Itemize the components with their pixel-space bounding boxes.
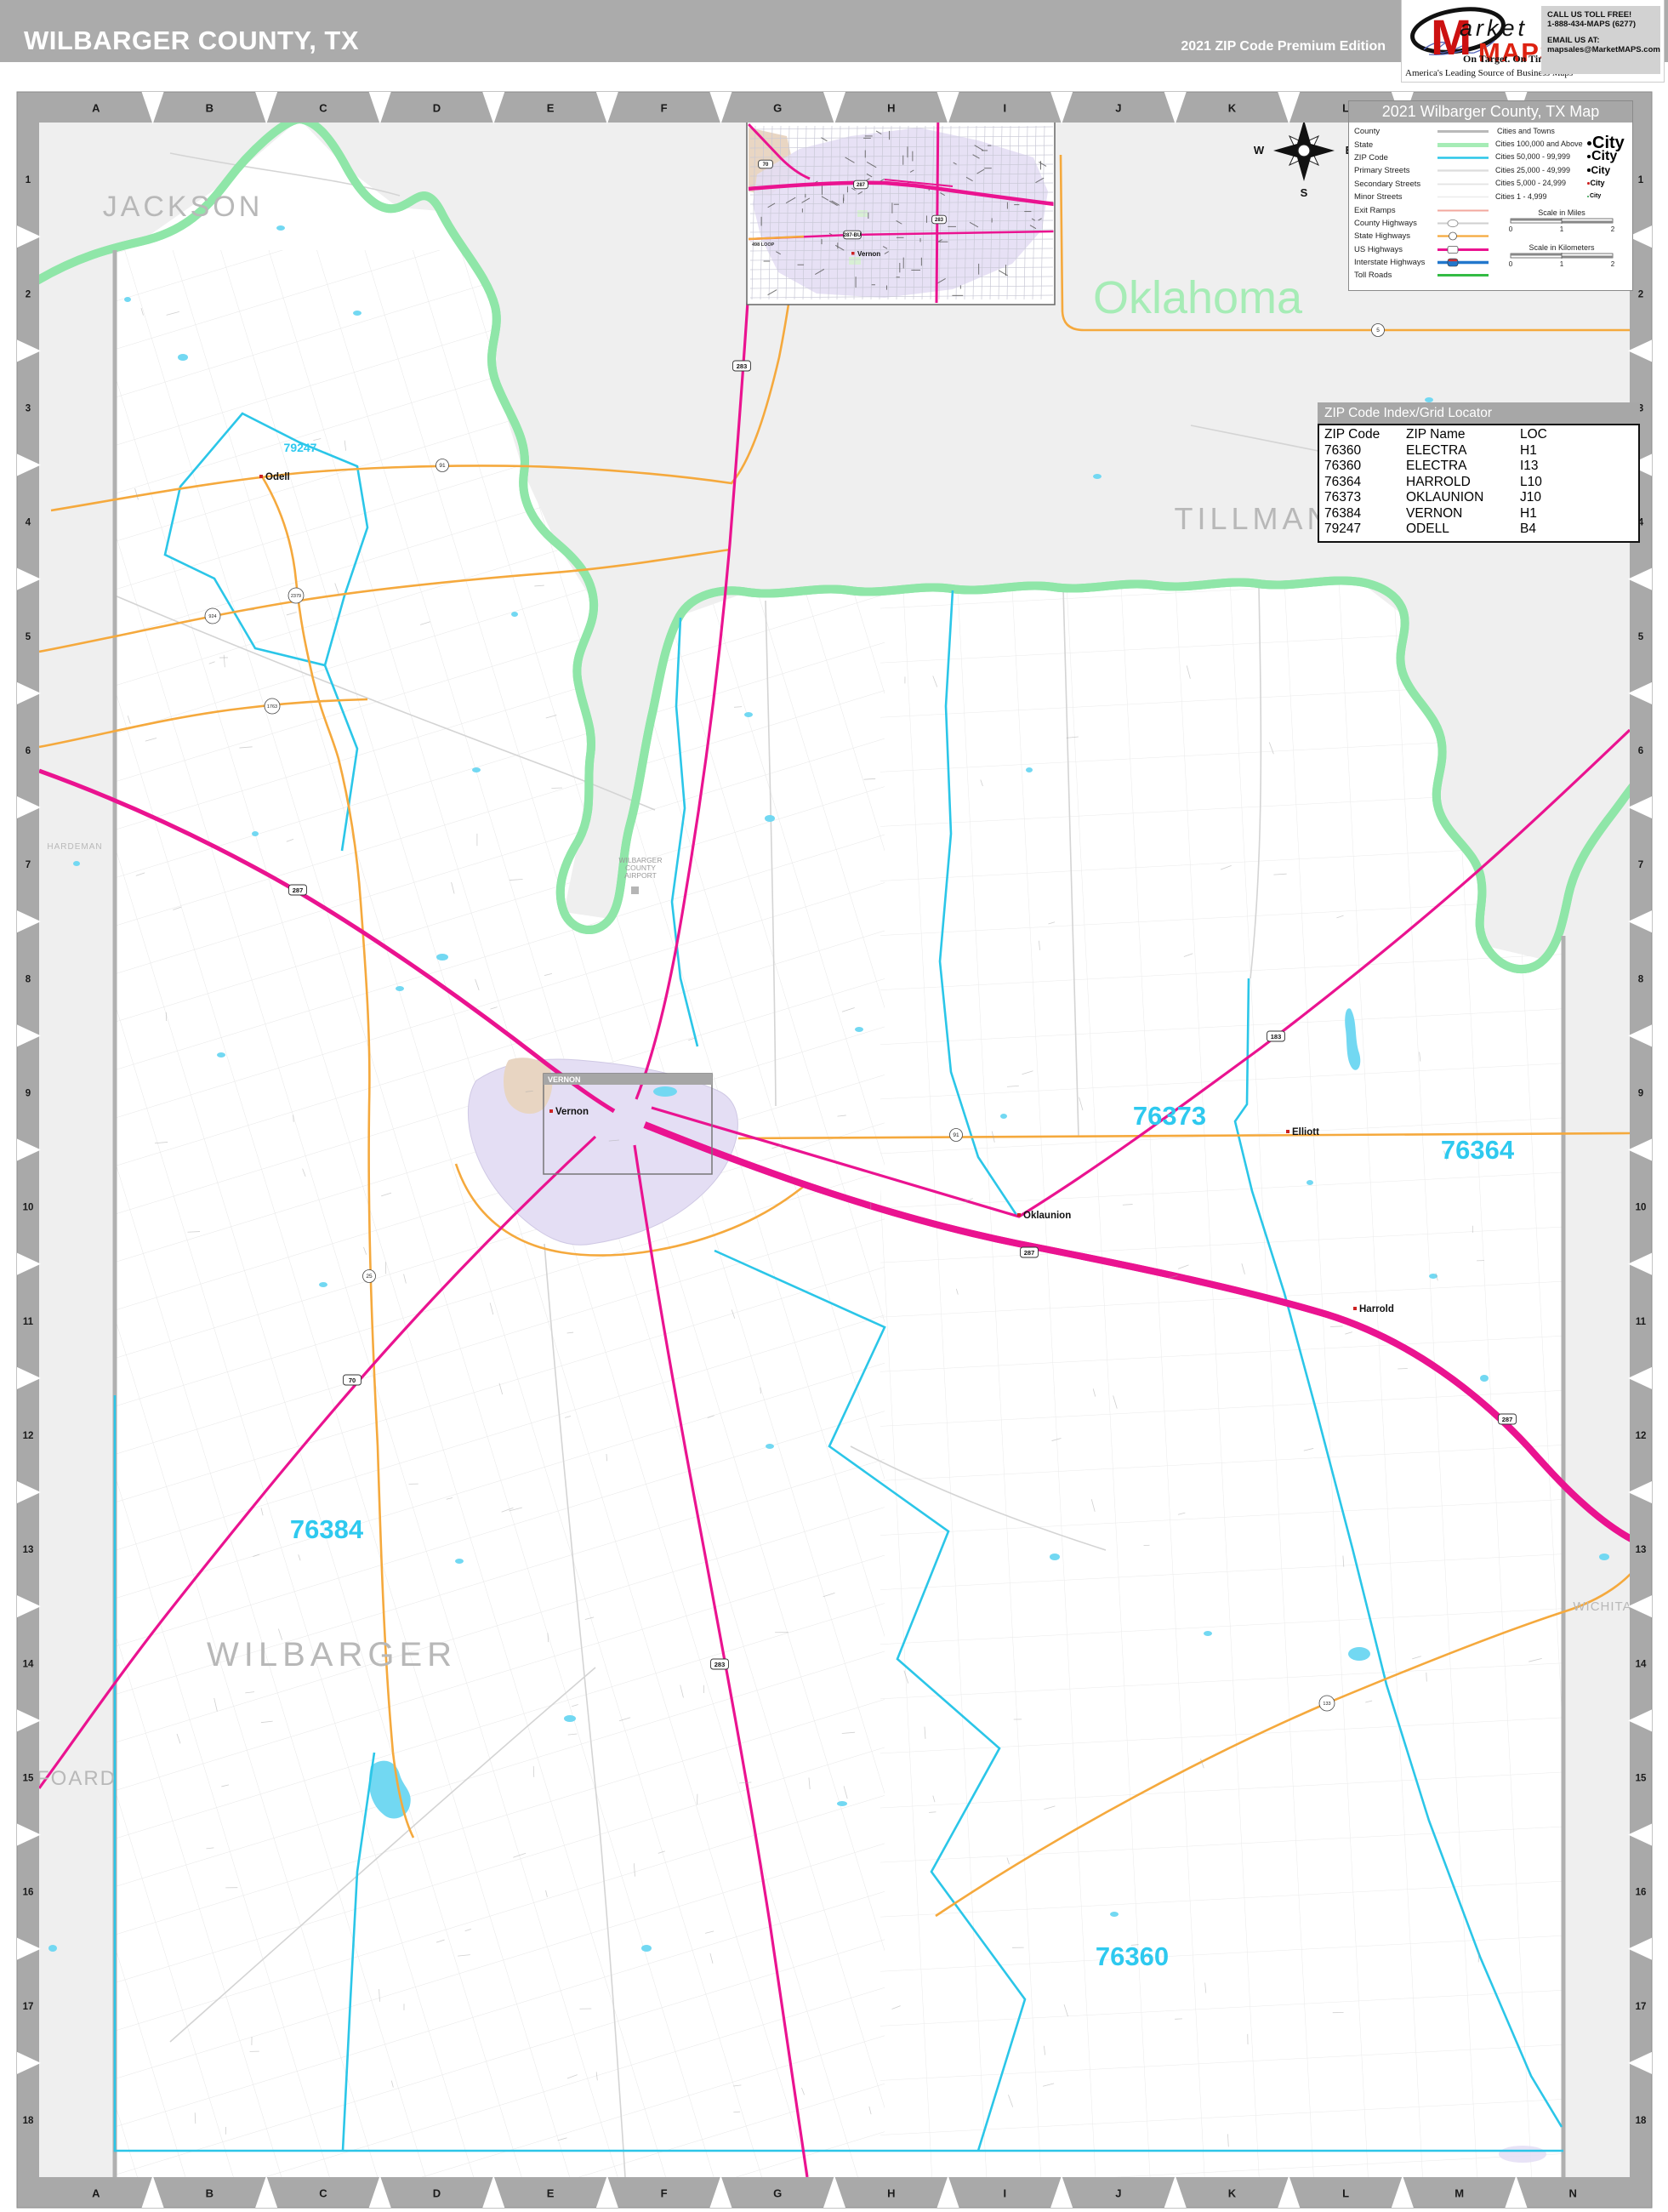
grid-number: 2 <box>1638 289 1643 299</box>
grid-number: 7 <box>1638 860 1643 870</box>
city-class-sample: City <box>1587 149 1617 164</box>
legend-item-label: US Highways <box>1354 245 1436 254</box>
zip-table-row: 76360ELECTRAH1 <box>1324 443 1638 459</box>
grid-letter: B <box>206 2187 213 2200</box>
legend-item-exit: Exit Ramps <box>1354 203 1495 216</box>
svg-text:91: 91 <box>953 1132 959 1138</box>
town-dot <box>1286 1130 1289 1133</box>
svg-text:Scale in Miles: Scale in Miles <box>1538 208 1585 217</box>
contact-phone: 1-888-434-MAPS (6277) <box>1547 20 1660 29</box>
grid-number: 15 <box>1636 1773 1647 1783</box>
svg-text:287: 287 <box>293 887 304 894</box>
legend-item-label: Primary Streets <box>1354 166 1436 175</box>
zip-table-cell: ODELL <box>1406 522 1520 538</box>
legend-item-secondary: Secondary Streets <box>1354 178 1495 191</box>
grid-letter: D <box>433 102 441 115</box>
legend-item-minor: Minor Streets <box>1354 191 1495 203</box>
state-label: Oklahoma <box>1093 272 1303 323</box>
compass-s: S <box>1301 186 1308 199</box>
grid-letter: B <box>206 102 213 115</box>
svg-text:2379: 2379 <box>291 594 301 599</box>
edition-label: 2021 ZIP Code Premium Edition <box>1181 39 1386 54</box>
grid-number: 9 <box>1638 1088 1643 1098</box>
svg-text:283: 283 <box>714 1661 726 1668</box>
legend-cities: Cities and Towns Cities 100,000 and Abov… <box>1495 123 1631 282</box>
town-dot <box>1017 1213 1021 1217</box>
map-legend: 2021 Wilbarger County, TX Map CountyStat… <box>1348 100 1633 291</box>
zip-code-label: 76373 <box>1133 1101 1206 1131</box>
grid-letter: E <box>547 2187 555 2200</box>
town-dot <box>259 475 263 478</box>
legend-city-class: Cities 50,000 - 99,999City <box>1495 151 1631 164</box>
zip-table-cell: ELECTRA <box>1406 459 1520 475</box>
svg-text:5: 5 <box>1376 328 1380 334</box>
town-dot <box>1353 1307 1357 1310</box>
grid-letter: M <box>1455 2187 1464 2200</box>
legend-line-sample-icon <box>1436 165 1490 176</box>
grid-number: 16 <box>23 1888 34 1898</box>
legend-item-label: Interstate Highways <box>1354 258 1436 267</box>
grid-letter: G <box>773 2187 782 2200</box>
legend-line-sample-icon <box>1436 126 1490 137</box>
grid-letter: F <box>661 2187 668 2200</box>
inset-loop-label: 498 LOOP <box>752 242 775 248</box>
town-label: Oklaunion <box>1023 1211 1071 1221</box>
zip-table-cell: 76360 <box>1324 459 1406 475</box>
svg-text:287: 287 <box>1502 1416 1513 1423</box>
zip-table-cell: I13 <box>1520 459 1571 475</box>
grid-number: 14 <box>1636 1659 1647 1669</box>
zip-table-cell: 76360 <box>1324 443 1406 459</box>
zip-code-label: 76384 <box>290 1514 364 1544</box>
legend-item-label: County <box>1354 127 1436 136</box>
compass-w: W <box>1254 144 1265 157</box>
zip-table-cell: L10 <box>1520 475 1571 491</box>
legend-item-label: Secondary Streets <box>1354 180 1436 189</box>
grid-number: 7 <box>26 860 31 870</box>
zip-table-cell: H1 <box>1520 443 1571 459</box>
grid-letter: H <box>887 2187 895 2200</box>
grid-number: 14 <box>23 1659 34 1669</box>
legend-item-label: Toll Roads <box>1354 271 1436 280</box>
svg-text:287-BU: 287-BU <box>844 233 862 238</box>
svg-text:287: 287 <box>857 183 866 188</box>
svg-text:Scale in Kilometers: Scale in Kilometers <box>1529 243 1595 252</box>
grid-number: 6 <box>1638 746 1643 756</box>
legend-line-sample-icon <box>1436 179 1490 190</box>
grid-number: 2 <box>26 289 31 299</box>
legend-line-sample-icon <box>1436 244 1490 255</box>
svg-text:0: 0 <box>1509 225 1513 233</box>
svg-text:283: 283 <box>737 362 748 370</box>
zip-table-title: ZIP Code Index/Grid Locator <box>1318 402 1640 424</box>
grid-number: 3 <box>26 403 31 413</box>
grid-letter: H <box>887 102 895 115</box>
legend-line-sample-icon <box>1436 205 1490 216</box>
grid-number: 15 <box>23 1773 34 1783</box>
zip-table-cell: 76373 <box>1324 490 1406 506</box>
legend-item-label: State Highways <box>1354 231 1436 241</box>
svg-text:283: 283 <box>935 218 944 223</box>
legend-item-primary: Primary Streets <box>1354 164 1495 177</box>
zip-table-cell: 76364 <box>1324 475 1406 491</box>
city-class-label: Cities 1 - 4,999 <box>1495 192 1587 201</box>
grid-letter: N <box>1569 2187 1577 2200</box>
legend-item-us_hwy: US Highways <box>1354 243 1495 256</box>
grid-number: 8 <box>1638 974 1644 984</box>
legend-item-label: County Highways <box>1354 219 1436 228</box>
city-class-sample: City <box>1587 164 1610 176</box>
grid-number: 10 <box>23 1203 34 1213</box>
grid-letter: C <box>319 2187 327 2200</box>
svg-text:133: 133 <box>1323 1702 1330 1707</box>
town-label: Harrold <box>1359 1304 1394 1314</box>
legend-line-sample-icon <box>1436 140 1490 151</box>
legend-line-sample-icon <box>1436 231 1490 242</box>
legend-city-class: Cities 1 - 4,999City <box>1495 190 1631 203</box>
zip-index-table: ZIP Code Index/Grid Locator ZIP CodeZIP … <box>1318 402 1640 543</box>
county-label: WICHITA <box>1573 1599 1631 1614</box>
town-label: Elliott <box>1292 1127 1319 1137</box>
zip-table-cell: ZIP Code <box>1324 427 1406 443</box>
county-label: TILLMAN <box>1174 501 1333 536</box>
contact-email: mapsales@MarketMAPS.com <box>1547 45 1660 54</box>
svg-text:924: 924 <box>208 614 216 619</box>
contact-call-label: CALL US TOLL FREE! <box>1547 10 1660 20</box>
county-label: HARDEMAN <box>47 842 102 852</box>
zip-table-cell: ELECTRA <box>1406 443 1520 459</box>
legend-item-zip: ZIP Code <box>1354 151 1495 164</box>
grid-number: 12 <box>23 1431 34 1441</box>
legend-item-interstate: Interstate Highways <box>1354 256 1495 269</box>
legend-line-sample-icon <box>1436 257 1490 268</box>
grid-number: 13 <box>23 1545 34 1555</box>
grid-letter: A <box>92 102 100 115</box>
grid-letter: E <box>547 102 555 115</box>
grid-letter: K <box>1228 102 1237 115</box>
grid-number: 8 <box>26 974 31 984</box>
legend-item-county: County <box>1354 125 1495 138</box>
legend-title: 2021 Wilbarger County, TX Map <box>1349 101 1632 123</box>
legend-item-state: State <box>1354 138 1495 151</box>
grid-letter: D <box>433 2187 441 2200</box>
vernon-rect-label: VERNON <box>548 1075 581 1084</box>
grid-letter: F <box>661 102 668 115</box>
grid-number: 17 <box>1636 2002 1647 2012</box>
grid-letter: I <box>1004 2187 1007 2200</box>
grid-letter: J <box>1115 2187 1121 2200</box>
zip-table-cell: HARROLD <box>1406 475 1520 491</box>
grid-number: 4 <box>26 518 31 528</box>
city-class-label: Cities 50,000 - 99,999 <box>1495 152 1587 161</box>
svg-text:1: 1 <box>1560 260 1564 268</box>
city-class-sample: City <box>1587 193 1601 199</box>
airport-label: AIRPORT <box>624 871 657 880</box>
svg-text:91: 91 <box>439 463 446 469</box>
zip-table-row: 76360ELECTRAI13 <box>1324 459 1638 475</box>
zip-table-row: 76373OKLAUNIONJ10 <box>1324 490 1638 506</box>
legend-line-sample-icon <box>1436 270 1490 281</box>
legend-line-sample-icon <box>1436 218 1490 229</box>
svg-text:1763: 1763 <box>267 704 277 710</box>
svg-text:70: 70 <box>349 1377 356 1384</box>
svg-text:2: 2 <box>1611 225 1615 233</box>
city-class-sample: City <box>1587 179 1605 187</box>
town-label: Odell <box>265 472 290 482</box>
scale-bar: Scale in Kilometers012 <box>1495 243 1623 269</box>
grid-letter: K <box>1228 2187 1237 2200</box>
grid-number: 10 <box>1636 1203 1647 1213</box>
zip-table-body: ZIP CodeZIP NameLOC76360ELECTRAH176360EL… <box>1318 424 1640 543</box>
grid-letter: L <box>1342 2187 1349 2200</box>
grid-number: 12 <box>1636 1431 1647 1441</box>
grid-number: 6 <box>26 746 31 756</box>
page-title: WILBARGER COUNTY, TX <box>24 26 359 56</box>
legend-item-label: Exit Ramps <box>1354 206 1436 215</box>
grid-number: 1 <box>1638 175 1644 185</box>
contact-box: CALL US TOLL FREE! 1-888-434-MAPS (6277)… <box>1541 6 1660 74</box>
svg-text:1: 1 <box>1560 225 1564 233</box>
grid-letter: A <box>92 2187 100 2200</box>
zip-table-row: 76364HARROLDL10 <box>1324 475 1638 491</box>
grid-letter: I <box>1004 102 1007 115</box>
grid-letter: C <box>319 102 327 115</box>
county-label: JACKSON <box>103 191 264 223</box>
svg-text:183: 183 <box>1271 1033 1282 1040</box>
grid-number: 17 <box>23 2002 34 2012</box>
svg-text:0: 0 <box>1509 260 1513 268</box>
city-class-label: Cities 100,000 and Above <box>1495 140 1587 148</box>
legend-line-sample-icon <box>1436 191 1490 202</box>
legend-line-items: CountyStateZIP CodePrimary StreetsSecond… <box>1349 123 1495 282</box>
zip-table-cell: 76384 <box>1324 506 1406 522</box>
legend-city-class: Cities 25,000 - 49,999City <box>1495 163 1631 177</box>
zip-code-label: 76364 <box>1441 1135 1515 1165</box>
zip-table-row: 76384VERNONH1 <box>1324 506 1638 522</box>
zip-table-header-row: ZIP CodeZIP NameLOC <box>1324 427 1638 443</box>
town-label: Vernon <box>555 1107 589 1117</box>
map-poster: { "header": { "title": "WILBARGER COUNTY… <box>0 0 1668 2212</box>
grid-number: 11 <box>23 1317 34 1327</box>
city-class-label: Cities 25,000 - 49,999 <box>1495 166 1587 174</box>
grid-number: 18 <box>1636 2116 1647 2126</box>
legend-city-class: Cities 100,000 and AboveCity <box>1495 137 1631 151</box>
zip-table-cell: VERNON <box>1406 506 1520 522</box>
brand-logo: M arket MAPS On Target. On Time. America… <box>1402 0 1664 82</box>
legend-item-toll: Toll Roads <box>1354 269 1495 282</box>
zip-table-cell: OKLAUNION <box>1406 490 1520 506</box>
legend-item-label: State <box>1354 140 1436 150</box>
legend-item-label: ZIP Code <box>1354 153 1436 162</box>
svg-text:70: 70 <box>763 162 769 168</box>
town-dot <box>549 1109 553 1113</box>
contact-email-label: EMAIL US AT: <box>1547 36 1660 45</box>
zip-table-cell: B4 <box>1520 522 1571 538</box>
county-label: WILBARGER <box>207 1636 457 1673</box>
grid-letter: J <box>1115 102 1121 115</box>
city-class-label: Cities 5,000 - 24,999 <box>1495 179 1587 187</box>
legend-item-state_hwy: State Highways <box>1354 230 1495 242</box>
inset-town-label: Vernon <box>857 250 880 258</box>
grid-letter: G <box>773 102 782 115</box>
zip-table-row: 79247ODELLB4 <box>1324 522 1638 538</box>
zip-code-label: 76360 <box>1096 1941 1169 1971</box>
legend-line-sample-icon <box>1436 152 1490 163</box>
zip-table-cell: H1 <box>1520 506 1571 522</box>
zip-table-cell: LOC <box>1520 427 1571 443</box>
county-label: FOARD <box>37 1767 117 1790</box>
county-map-canvas: VERNON WILBARGERCOUNTYAIRPORT JACKSONTIL… <box>0 0 1668 2212</box>
vernon-inset-map: VERNON 70287283287-BU Vernon 498 LOOP <box>747 100 1055 305</box>
scale-bar: Scale in Miles012 <box>1495 208 1623 234</box>
zip-code-label: 79247 <box>284 441 317 454</box>
grid-number: 9 <box>26 1088 31 1098</box>
grid-number: 18 <box>23 2116 34 2126</box>
svg-text:25: 25 <box>366 1274 373 1280</box>
grid-number: 11 <box>1636 1317 1647 1327</box>
svg-text:287: 287 <box>1024 1249 1035 1257</box>
legend-city-class: Cities 5,000 - 24,999City <box>1495 177 1631 191</box>
grid-number: 1 <box>26 175 31 185</box>
logo-tagline: On Target. On Time. <box>1463 53 1554 66</box>
grid-number: 13 <box>1636 1545 1647 1555</box>
legend-item-label: Minor Streets <box>1354 192 1436 202</box>
zip-table-cell: ZIP Name <box>1406 427 1520 443</box>
grid-number: 5 <box>1638 632 1644 642</box>
zip-table-cell: 79247 <box>1324 522 1406 538</box>
legend-item-county_hwy: County Highways <box>1354 217 1495 230</box>
grid-number: 5 <box>26 632 31 642</box>
svg-text:2: 2 <box>1611 260 1615 268</box>
grid-number: 16 <box>1636 1888 1647 1898</box>
zip-table-cell: J10 <box>1520 490 1571 506</box>
